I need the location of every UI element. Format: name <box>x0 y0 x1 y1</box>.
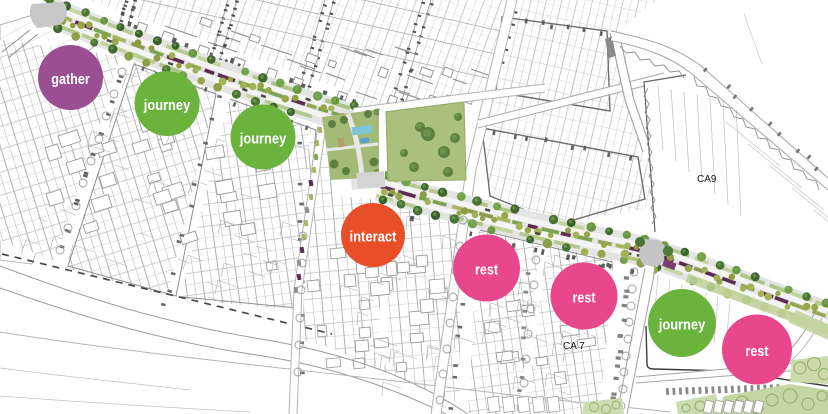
svg-text:CA9: CA9 <box>697 174 717 185</box>
svg-text:journey: journey <box>143 97 191 114</box>
svg-text:interact: interact <box>350 229 397 246</box>
svg-text:journey: journey <box>239 131 287 148</box>
svg-text:journey: journey <box>658 317 706 334</box>
svg-text:rest: rest <box>573 290 596 307</box>
svg-text:CA 7: CA 7 <box>563 341 585 352</box>
svg-text:gather: gather <box>51 71 90 88</box>
svg-text:rest: rest <box>475 262 498 279</box>
svg-text:rest: rest <box>746 343 769 360</box>
